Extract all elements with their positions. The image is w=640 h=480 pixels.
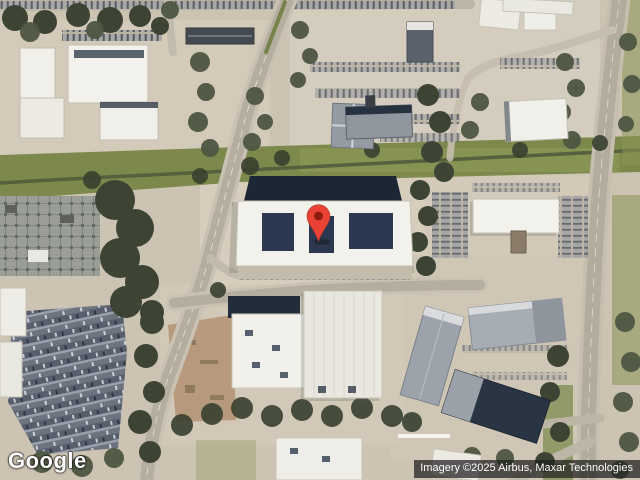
map-canvas[interactable]: Google Imagery ©2025 Airbus, Maxar Techn… bbox=[0, 0, 640, 480]
satellite-imagery bbox=[0, 0, 640, 480]
pin-dot bbox=[314, 212, 323, 221]
warehouse bbox=[301, 291, 382, 401]
google-logo[interactable]: Google bbox=[8, 448, 87, 474]
map-attribution: Imagery ©2025 Airbus, Maxar Technologies bbox=[414, 460, 640, 478]
substation bbox=[0, 196, 100, 276]
